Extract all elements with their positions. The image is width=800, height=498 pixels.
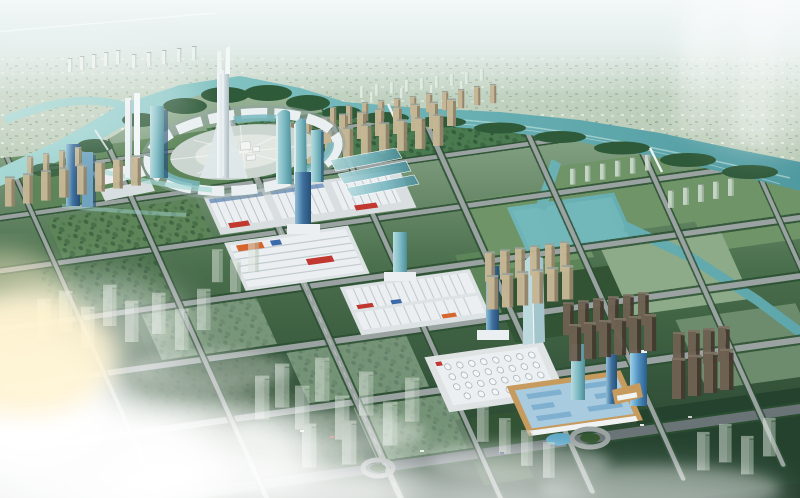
aerial-city-rendering xyxy=(0,0,800,498)
northeast-tower xyxy=(311,130,324,182)
scene-canvas xyxy=(0,0,800,498)
